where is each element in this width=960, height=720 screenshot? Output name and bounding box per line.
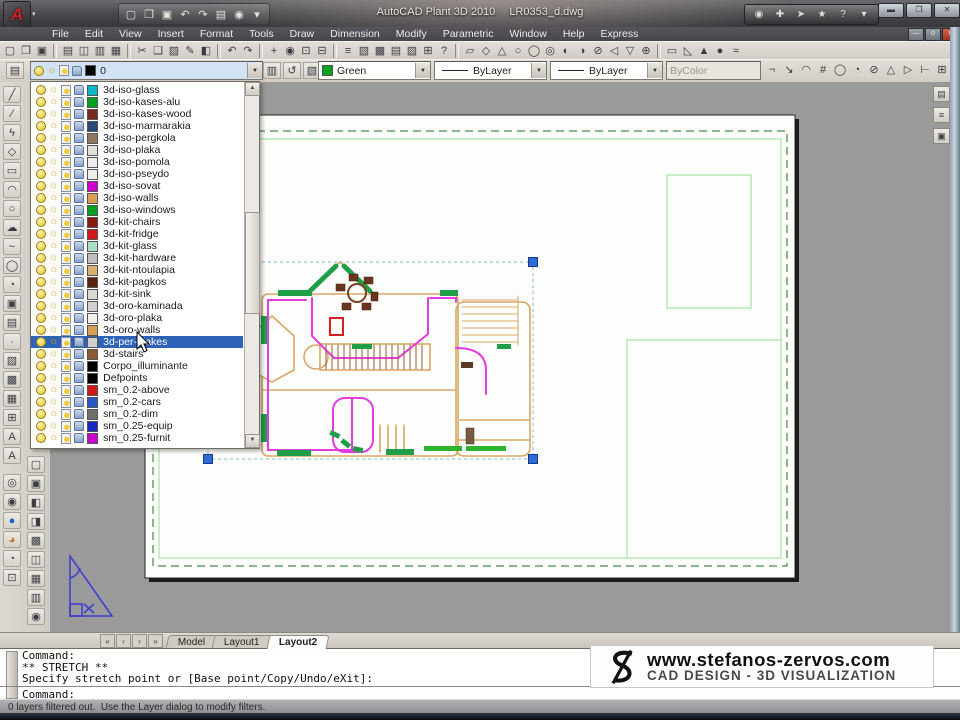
layer-lock-icon[interactable] (74, 265, 84, 275)
qnew-icon[interactable]: ▢ (2, 43, 18, 58)
layer-vp-freeze-icon[interactable] (61, 349, 71, 360)
plot-preview-icon[interactable]: ◫ (76, 43, 92, 58)
3d-wireframe-icon[interactable]: ▣ (27, 475, 45, 492)
table-icon[interactable]: ⊞ (3, 409, 21, 426)
menu-modify[interactable]: Modify (388, 28, 435, 40)
layer-on-icon[interactable] (36, 181, 46, 191)
designcenter-icon[interactable]: ▧ (356, 43, 372, 58)
layer-color-swatch[interactable] (87, 217, 98, 228)
fitting-icon[interactable]: ◐ (558, 43, 574, 58)
layer-color-swatch[interactable] (87, 385, 98, 396)
layer-freeze-icon[interactable]: ☼ (49, 86, 58, 94)
dim-jogged-icon[interactable]: ◔ (849, 62, 865, 77)
layer-lock-icon[interactable] (74, 289, 84, 299)
paste-icon[interactable]: ▨ (166, 43, 182, 58)
layer-lock-icon[interactable] (74, 109, 84, 119)
layer-on-icon[interactable] (36, 229, 46, 239)
layer-vp-freeze-icon[interactable] (61, 181, 71, 192)
extrude-icon[interactable]: ≈ (728, 43, 744, 58)
layer-vp-freeze-icon[interactable] (61, 337, 71, 348)
3d-hidden-icon[interactable]: ◧ (27, 494, 45, 511)
layer-vp-freeze-icon[interactable] (61, 301, 71, 312)
sphere-render-icon[interactable]: ◕ (3, 531, 21, 548)
linetype-dropdown-icon[interactable]: ▼ (531, 63, 546, 78)
polyline-icon[interactable]: ϟ (3, 124, 21, 141)
layer-color-swatch[interactable] (87, 121, 98, 132)
layer-color-swatch[interactable] (87, 133, 98, 144)
menu-edit[interactable]: Edit (77, 28, 111, 40)
layer-lock-icon[interactable] (74, 169, 84, 179)
layer-vp-freeze-icon[interactable] (61, 289, 71, 300)
layer-row-sm_0.25-furnit[interactable]: ☼sm_0.25-furnit (31, 432, 243, 444)
undo-icon[interactable]: ↶ (177, 7, 193, 22)
layer-freeze-icon[interactable]: ☼ (49, 158, 58, 166)
layer-previous-icon[interactable]: ↺ (283, 62, 301, 79)
viewport-lock-icon[interactable]: ▤ (933, 86, 950, 102)
layer-list-scrollbar[interactable]: ▲ ▼ (244, 82, 259, 448)
menu-help[interactable]: Help (555, 28, 593, 40)
realistic-icon[interactable]: ◨ (27, 513, 45, 530)
layer-on-icon[interactable] (36, 409, 46, 419)
box-3d-icon[interactable]: ▭ (664, 43, 680, 58)
polygon-icon[interactable]: ◇ (3, 143, 21, 160)
layer-color-swatch[interactable] (87, 229, 98, 240)
help-dropdown-icon[interactable]: ▾ (856, 7, 872, 22)
layer-lock-icon[interactable] (74, 97, 84, 107)
menu-format[interactable]: Format (192, 28, 241, 40)
layer-dropdown-panel[interactable]: ☼3d-iso-glass☼3d-iso-kases-alu☼3d-iso-ka… (30, 81, 260, 449)
layer-freeze-icon[interactable]: ☼ (49, 326, 58, 334)
equipment-icon[interactable]: ◇ (478, 43, 494, 58)
user-icon[interactable]: ◉ (231, 7, 247, 22)
layer-row-3d-iso-pseydo[interactable]: ☼3d-iso-pseydo (31, 168, 243, 180)
block-editor-icon[interactable]: ◧ (198, 43, 214, 58)
color-dropdown-icon[interactable]: ▼ (415, 63, 430, 78)
layer-on-icon[interactable] (36, 121, 46, 131)
layer-lock-icon[interactable] (74, 205, 84, 215)
layer-freeze-icon[interactable]: ☼ (49, 170, 58, 178)
tolerance-icon[interactable]: ⊞ (934, 62, 950, 77)
layer-lock-icon[interactable] (74, 133, 84, 143)
render-preset-icon[interactable]: ▥ (27, 589, 45, 606)
layer-color-swatch[interactable] (87, 361, 98, 372)
customize-dropdown-icon[interactable]: ▾ (249, 7, 265, 22)
layer-vp-freeze-icon[interactable] (61, 217, 71, 228)
layer-on-icon[interactable] (36, 217, 46, 227)
autocad-logo-icon[interactable]: A (3, 1, 31, 28)
layer-on-icon[interactable] (36, 313, 46, 323)
layer-lock-icon[interactable] (74, 337, 84, 347)
layer-color-swatch[interactable] (87, 265, 98, 276)
layer-freeze-icon[interactable]: ☼ (49, 146, 58, 154)
layer-color-swatch[interactable] (87, 109, 98, 120)
layer-freeze-icon[interactable]: ☼ (49, 242, 58, 250)
tab-model[interactable]: Model (166, 635, 218, 649)
layer-lock-icon[interactable] (74, 421, 84, 431)
dim-diameter-icon[interactable]: ⊘ (866, 62, 882, 77)
layer-on-icon[interactable] (36, 265, 46, 275)
layer-vp-freeze-icon[interactable] (61, 229, 71, 240)
layer-lock-icon[interactable] (74, 361, 84, 371)
layer-row-3d-iso-plaka[interactable]: ☼3d-iso-plaka (31, 144, 243, 156)
layer-vp-freeze-icon[interactable] (61, 385, 71, 396)
valve-icon[interactable]: ◎ (542, 43, 558, 58)
iso-view-icon[interactable]: ◁ (606, 43, 622, 58)
undo-icon[interactable]: ↶ (224, 43, 240, 58)
layer-on-icon[interactable] (36, 205, 46, 215)
layer-on-icon[interactable] (36, 109, 46, 119)
subscription-icon[interactable]: ✚ (772, 7, 788, 22)
layer-vp-freeze-icon[interactable] (61, 205, 71, 216)
layer-vp-freeze-icon[interactable] (61, 265, 71, 276)
scroll-up-icon[interactable]: ▲ (245, 82, 260, 96)
layer-row-3d-iso-glass[interactable]: ☼3d-iso-glass (31, 84, 243, 96)
next-tab-icon[interactable]: › (132, 634, 147, 648)
layer-freeze-icon[interactable]: ☼ (49, 218, 58, 226)
layer-row-3d-iso-sovat[interactable]: ☼3d-iso-sovat (31, 180, 243, 192)
layer-color-swatch[interactable] (87, 337, 98, 348)
layer-freeze-icon[interactable]: ☼ (49, 338, 58, 346)
multiline-text-icon[interactable]: A (3, 428, 21, 445)
dim-arc-icon[interactable]: ◠ (798, 62, 814, 77)
grip-bottom-right[interactable] (529, 455, 538, 464)
layer-lock-icon[interactable] (74, 385, 84, 395)
gradient-icon[interactable]: ▩ (3, 371, 21, 388)
doc-minimize-button[interactable]: — (908, 28, 924, 41)
spline-icon[interactable]: ~ (3, 238, 21, 255)
save-icon[interactable]: ▣ (34, 43, 50, 58)
layer-row-3d-iso-marmarakia[interactable]: ☼3d-iso-marmarakia (31, 120, 243, 132)
layer-on-icon[interactable] (36, 301, 46, 311)
layer-vp-freeze-icon[interactable] (61, 169, 71, 180)
layer-vp-freeze-icon[interactable] (61, 421, 71, 432)
layer-freeze-icon[interactable]: ☼ (49, 314, 58, 322)
layer-row-sm_0.2-above[interactable]: ☼sm_0.2-above (31, 384, 243, 396)
layer-vp-freeze-icon[interactable] (61, 121, 71, 132)
layer-row-Defpoints[interactable]: ☼Defpoints (31, 372, 243, 384)
layer-row-3d-iso-kases-alu[interactable]: ☼3d-iso-kases-alu (31, 96, 243, 108)
layer-vp-freeze-icon[interactable] (61, 133, 71, 144)
properties-icon[interactable]: ≡ (340, 43, 356, 58)
named-views-icon[interactable]: ⊡ (3, 569, 21, 586)
layer-freeze-icon[interactable]: ☼ (49, 98, 58, 106)
sphere-shaded-icon[interactable]: ● (3, 512, 21, 529)
layer-color-swatch[interactable] (87, 277, 98, 288)
layer-color-swatch[interactable] (87, 301, 98, 312)
layer-on-icon[interactable] (36, 325, 46, 335)
single-text-icon[interactable]: A (3, 447, 21, 464)
layer-freeze-icon[interactable]: ☼ (49, 134, 58, 142)
copy-icon[interactable]: ❏ (150, 43, 166, 58)
render-icon[interactable]: ⊕ (638, 43, 654, 58)
layer-color-swatch[interactable] (87, 313, 98, 324)
layer-vp-freeze-icon[interactable] (61, 157, 71, 168)
layer-on-icon[interactable] (36, 169, 46, 179)
grip-top-right[interactable] (529, 258, 538, 267)
sphere-3d-icon[interactable]: ● (712, 43, 728, 58)
layer-lock-icon[interactable] (74, 85, 84, 95)
tab-layout2[interactable]: Layout2 (266, 635, 329, 649)
layer-vp-freeze-icon[interactable] (61, 193, 71, 204)
layer-vp-freeze-icon[interactable] (61, 397, 71, 408)
layer-vp-freeze-icon[interactable] (61, 241, 71, 252)
scroll-down-icon[interactable]: ▼ (245, 434, 260, 448)
tab-layout1[interactable]: Layout1 (212, 635, 273, 649)
layer-row-3d-kit-chairs[interactable]: ☼3d-kit-chairs (31, 216, 243, 228)
layer-properties-manager-icon[interactable]: ▤ (6, 62, 24, 79)
open-icon[interactable]: ❐ (18, 43, 34, 58)
layer-color-swatch[interactable] (87, 85, 98, 96)
layer-freeze-icon[interactable]: ☼ (49, 434, 58, 442)
layer-row-sm_0.2-cars[interactable]: ☼sm_0.2-cars (31, 396, 243, 408)
layer-combo[interactable]: ☼ 0 ▼ (30, 61, 263, 80)
dim-ordinate-icon[interactable]: # (815, 62, 831, 77)
layer-on-icon[interactable] (36, 97, 46, 107)
arc-icon[interactable]: ◠ (3, 181, 21, 198)
layer-lock-icon[interactable] (74, 277, 84, 287)
match-properties-icon[interactable]: ✎ (182, 43, 198, 58)
layer-on-icon[interactable] (36, 373, 46, 383)
layer-lock-icon[interactable] (74, 121, 84, 131)
layer-vp-freeze-icon[interactable] (61, 373, 71, 384)
layer-color-swatch[interactable] (87, 409, 98, 420)
layer-lock-icon[interactable] (74, 157, 84, 167)
redo-icon[interactable]: ↷ (240, 43, 256, 58)
layer-freeze-icon[interactable]: ☼ (49, 254, 58, 262)
open-icon[interactable]: ❐ (141, 7, 157, 22)
layer-color-swatch[interactable] (87, 421, 98, 432)
dim-radius-icon[interactable]: ◯ (832, 62, 848, 77)
grip-bottom-left[interactable] (204, 455, 213, 464)
qnew-icon[interactable]: ▢ (123, 7, 139, 22)
layer-vp-freeze-icon[interactable] (61, 109, 71, 120)
pan-icon[interactable]: + (266, 43, 282, 58)
layer-row-3d-kit-ntoulapia[interactable]: ☼3d-kit-ntoulapia (31, 264, 243, 276)
layer-on-icon[interactable] (36, 385, 46, 395)
communication-center-icon[interactable]: ➤ (793, 7, 809, 22)
2d-wireframe-icon[interactable]: ▢ (27, 456, 45, 473)
restore-button[interactable]: ❐ (906, 3, 932, 18)
layer-on-icon[interactable] (36, 349, 46, 359)
help-icon[interactable]: ? (436, 43, 452, 58)
dim-linear-icon[interactable]: ¬ (764, 62, 780, 77)
markup-manager-icon[interactable]: ▨ (404, 43, 420, 58)
layer-on-icon[interactable] (36, 133, 46, 143)
layer-lock-icon[interactable] (74, 241, 84, 251)
layer-on-icon[interactable] (36, 157, 46, 167)
make-block-icon[interactable]: ▤ (3, 314, 21, 331)
hatch-icon[interactable]: ▨ (3, 352, 21, 369)
dim-angular-icon[interactable]: △ (883, 62, 899, 77)
layer-lock-icon[interactable] (74, 229, 84, 239)
plot-icon[interactable]: ▤ (60, 43, 76, 58)
layer-on-icon[interactable] (36, 253, 46, 263)
line-icon[interactable]: ╱ (3, 86, 21, 103)
layer-row-Corpo_illuminante[interactable]: ☼Corpo_illuminante (31, 360, 243, 372)
layer-vp-freeze-icon[interactable] (61, 277, 71, 288)
layer-lock-icon[interactable] (74, 193, 84, 203)
menu-parametric[interactable]: Parametric (435, 28, 502, 40)
layer-on-icon[interactable] (36, 85, 46, 95)
layer-vp-freeze-icon[interactable] (61, 313, 71, 324)
layer-color-swatch[interactable] (87, 397, 98, 408)
layer-color-swatch[interactable] (87, 253, 98, 264)
layer-row-3d-kit-hardware[interactable]: ☼3d-kit-hardware (31, 252, 243, 264)
layer-row-3d-kit-fridge[interactable]: ☼3d-kit-fridge (31, 228, 243, 240)
favorites-icon[interactable]: ★ (814, 7, 830, 22)
make-object-layer-current-icon[interactable]: ▥ (263, 62, 281, 79)
layer-lock-icon[interactable] (74, 253, 84, 263)
layer-row-3d-kit-sink[interactable]: ☼3d-kit-sink (31, 288, 243, 300)
circle-icon[interactable]: ○ (3, 200, 21, 217)
layer-color-swatch[interactable] (87, 373, 98, 384)
color-combo[interactable]: Green ▼ (318, 61, 431, 80)
layer-vp-freeze-icon[interactable] (61, 145, 71, 156)
logo-dropdown-icon[interactable]: ▾ (32, 10, 36, 18)
ortho-view-icon[interactable]: ▽ (622, 43, 638, 58)
layer-freeze-icon[interactable]: ☼ (49, 278, 58, 286)
layer-row-3d-iso-walls[interactable]: ☼3d-iso-walls (31, 192, 243, 204)
layer-vp-freeze-icon[interactable] (61, 409, 71, 420)
zoom-window-icon[interactable]: ⊡ (298, 43, 314, 58)
layer-row-sm_0.2-dim[interactable]: ☼sm_0.2-dim (31, 408, 243, 420)
layer-freeze-icon[interactable]: ☼ (49, 362, 58, 370)
slope-pipe-icon[interactable]: ⊘ (590, 43, 606, 58)
wedge-3d-icon[interactable]: ◺ (680, 43, 696, 58)
layer-freeze-icon[interactable]: ☼ (49, 386, 58, 394)
layer-color-swatch[interactable] (87, 205, 98, 216)
layer-freeze-icon[interactable]: ☼ (49, 110, 58, 118)
layer-color-swatch[interactable] (87, 241, 98, 252)
layer-color-swatch[interactable] (87, 193, 98, 204)
layer-freeze-icon[interactable]: ☼ (49, 398, 58, 406)
layer-vp-freeze-icon[interactable] (61, 97, 71, 108)
sheet-set-manager-icon[interactable]: ▤ (388, 43, 404, 58)
layer-lock-icon[interactable] (74, 313, 84, 323)
layer-vp-freeze-icon[interactable] (61, 85, 71, 96)
quickcalc-icon[interactable]: ⊞ (420, 43, 436, 58)
dim-aligned-icon[interactable]: ↘ (781, 62, 797, 77)
layer-on-icon[interactable] (36, 361, 46, 371)
layer-color-swatch[interactable] (87, 145, 98, 156)
scroll-thumb[interactable] (245, 212, 260, 314)
tool-palettes-icon[interactable]: ▩ (372, 43, 388, 58)
conceptual-icon[interactable]: ▩ (27, 532, 45, 549)
menu-insert[interactable]: Insert (150, 28, 192, 40)
layer-row-3d-kit-glass[interactable]: ☼3d-kit-glass (31, 240, 243, 252)
close-button[interactable]: ✕ (934, 3, 960, 18)
layer-color-swatch[interactable] (87, 169, 98, 180)
layer-combo-dropdown-icon[interactable]: ▼ (247, 63, 262, 78)
lineweight-combo[interactable]: ByLayer ▼ (550, 61, 663, 80)
project-manager-icon[interactable]: ▱ (462, 43, 478, 58)
annotation-scale-icon[interactable]: ≡ (933, 107, 950, 123)
layer-vp-freeze-icon[interactable] (61, 361, 71, 372)
free-orbit-icon[interactable]: ◉ (3, 493, 21, 510)
layer-color-swatch[interactable] (87, 157, 98, 168)
ellipse-icon[interactable]: ◯ (3, 257, 21, 274)
layer-row-3d-iso-pomola[interactable]: ☼3d-iso-pomola (31, 156, 243, 168)
nozzle-icon[interactable]: △ (494, 43, 510, 58)
point-icon[interactable]: · (3, 333, 21, 350)
layer-lock-icon[interactable] (74, 217, 84, 227)
doc-restore-button[interactable]: o (925, 28, 941, 41)
menu-draw[interactable]: Draw (282, 28, 323, 40)
menu-dimension[interactable]: Dimension (322, 28, 388, 40)
layer-freeze-icon[interactable]: ☼ (49, 422, 58, 430)
layer-freeze-icon[interactable]: ☼ (49, 350, 58, 358)
layer-on-icon[interactable] (36, 277, 46, 287)
layer-vp-freeze-icon[interactable] (61, 433, 71, 444)
menu-file[interactable]: File (44, 28, 77, 40)
layer-on-icon[interactable] (36, 241, 46, 251)
zoom-object-icon[interactable]: ◉ (27, 608, 45, 625)
pipe-spec-icon[interactable]: ◯ (526, 43, 542, 58)
layer-row-3d-iso-windows[interactable]: ☼3d-iso-windows (31, 204, 243, 216)
layer-row-3d-iso-pergkola[interactable]: ☼3d-iso-pergkola (31, 132, 243, 144)
rectangle-icon[interactable]: ▭ (3, 162, 21, 179)
save-state-icon[interactable]: ▣ (933, 128, 950, 144)
layer-freeze-icon[interactable]: ☼ (49, 410, 58, 418)
layer-on-icon[interactable] (36, 289, 46, 299)
revision-cloud-icon[interactable]: ☁ (3, 219, 21, 236)
layer-lock-icon[interactable] (74, 349, 84, 359)
layer-vp-freeze-icon[interactable] (61, 325, 71, 336)
layer-lock-icon[interactable] (74, 397, 84, 407)
layer-on-icon[interactable] (36, 193, 46, 203)
construction-line-icon[interactable]: ∕ (3, 105, 21, 122)
layer-on-icon[interactable] (36, 397, 46, 407)
dim-baseline-icon[interactable]: ⊢ (917, 62, 933, 77)
layer-color-swatch[interactable] (87, 325, 98, 336)
layer-on-icon[interactable] (36, 421, 46, 431)
cone-3d-icon[interactable]: ▲ (696, 43, 712, 58)
layer-freeze-icon[interactable]: ☼ (49, 182, 58, 190)
region-icon[interactable]: ▦ (3, 390, 21, 407)
menu-express[interactable]: Express (592, 28, 646, 40)
minimize-button[interactable]: ▬ (878, 3, 904, 18)
prev-tab-icon[interactable]: ‹ (116, 634, 131, 648)
layer-freeze-icon[interactable]: ☼ (49, 122, 58, 130)
menu-window[interactable]: Window (501, 28, 554, 40)
layer-row-3d-oro-plaka[interactable]: ☼3d-oro-plaka (31, 312, 243, 324)
last-tab-icon[interactable]: » (148, 634, 163, 648)
layer-color-swatch[interactable] (87, 97, 98, 108)
layer-lock-icon[interactable] (74, 409, 84, 419)
sketchy-icon[interactable]: ▦ (27, 570, 45, 587)
menu-view[interactable]: View (111, 28, 150, 40)
zoom-realtime-icon[interactable]: ◉ (282, 43, 298, 58)
layer-freeze-icon[interactable]: ☼ (49, 230, 58, 238)
insert-block-icon[interactable]: ▣ (3, 295, 21, 312)
layer-freeze-icon[interactable]: ☼ (49, 290, 58, 298)
save-icon[interactable]: ▣ (159, 7, 175, 22)
shades-of-gray-icon[interactable]: ◫ (27, 551, 45, 568)
search-binoculars-icon[interactable]: ◉ (751, 7, 767, 22)
layer-freeze-icon[interactable]: ☼ (49, 302, 58, 310)
layer-freeze-icon[interactable]: ☼ (49, 266, 58, 274)
first-tab-icon[interactable]: « (100, 634, 115, 648)
command-window-grip[interactable] (6, 651, 18, 699)
cut-icon[interactable]: ✂ (134, 43, 150, 58)
layer-color-swatch[interactable] (87, 289, 98, 300)
layer-lock-icon[interactable] (74, 301, 84, 311)
route-pipe-icon[interactable]: ○ (510, 43, 526, 58)
layer-color-swatch[interactable] (87, 181, 98, 192)
layer-row-3d-iso-kases-wood[interactable]: ☼3d-iso-kases-wood (31, 108, 243, 120)
layer-lock-icon[interactable] (74, 433, 84, 443)
lineweight-dropdown-icon[interactable]: ▼ (647, 63, 662, 78)
